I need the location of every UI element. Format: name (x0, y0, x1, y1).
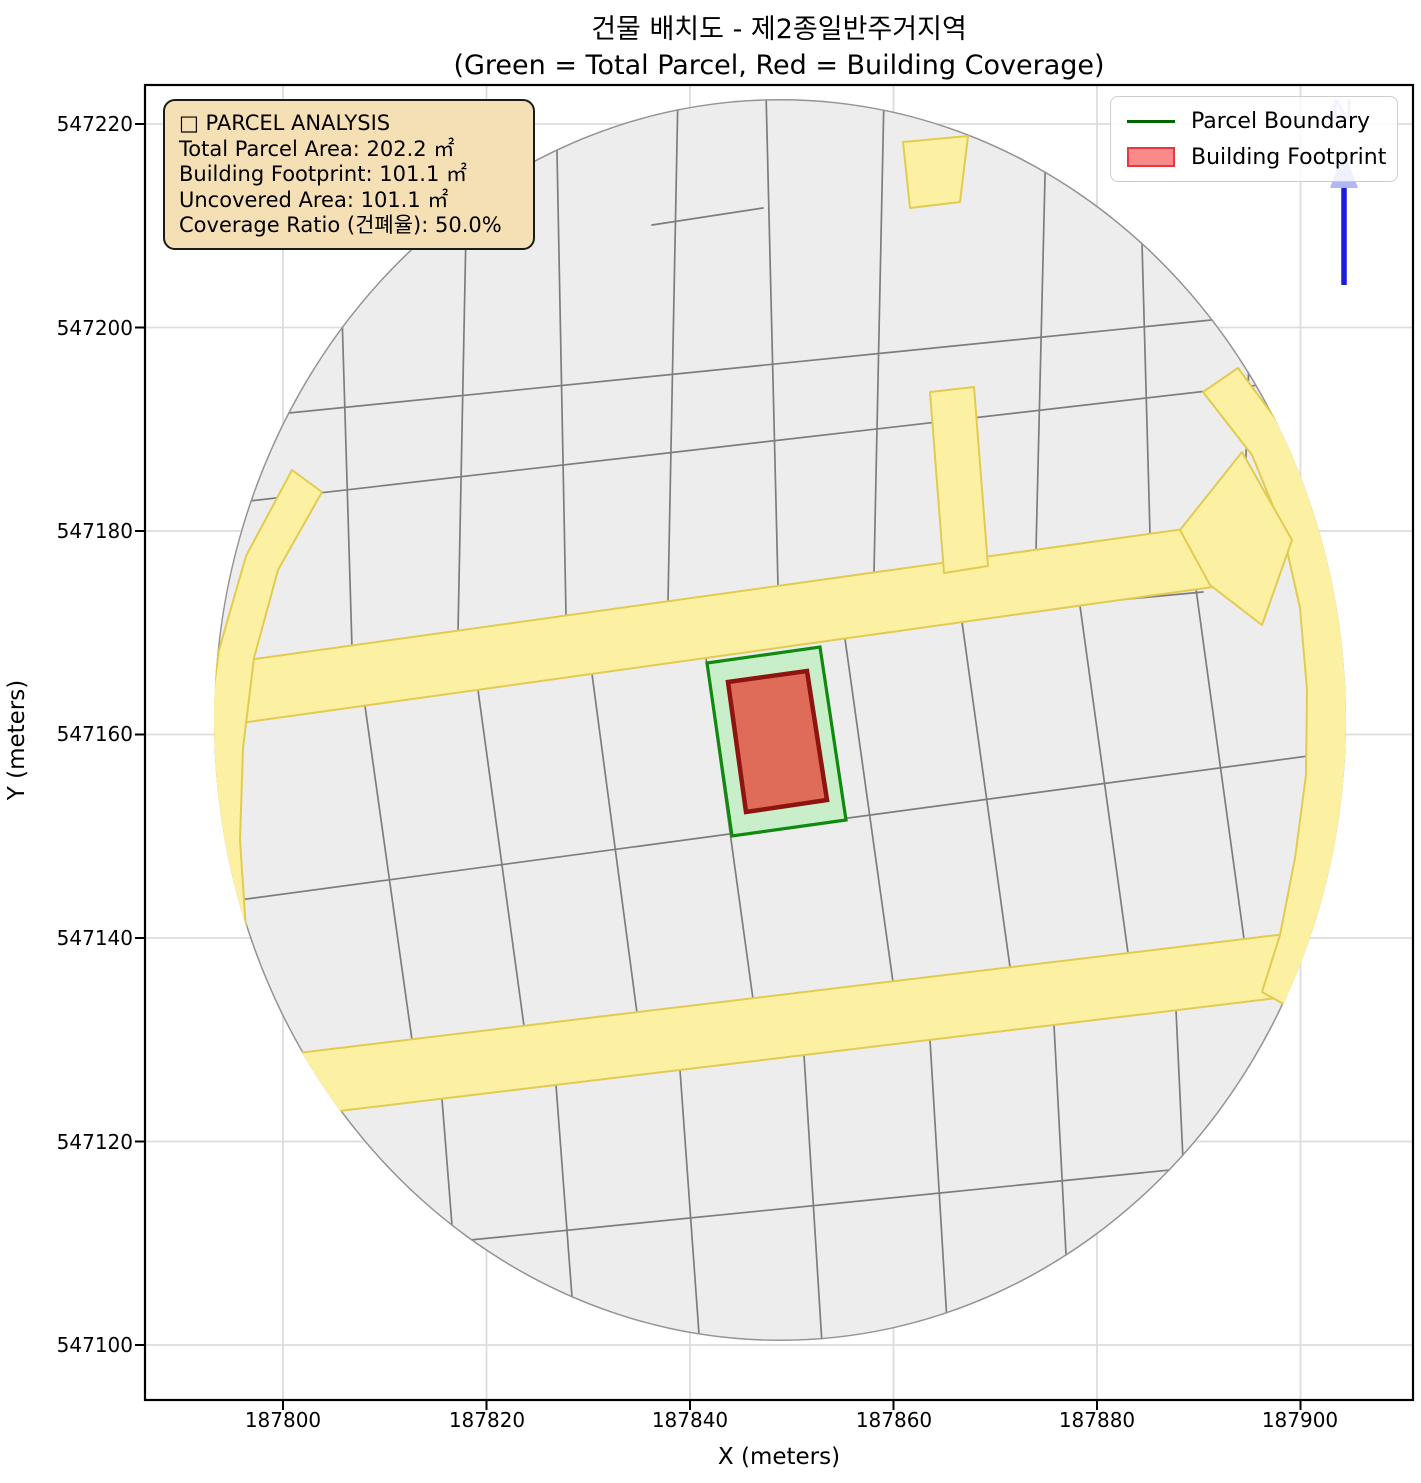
y-tick-label: 547120 (33, 1130, 133, 1154)
road-stub-top (903, 136, 968, 208)
building-footprint (728, 671, 827, 812)
y-tick-label: 547180 (33, 519, 133, 543)
legend-label: Parcel Boundary (1191, 109, 1370, 134)
title-line-1: 건물 배치도 - 제2종일반주거지역 (145, 12, 1413, 48)
legend-label: Building Footprint (1191, 145, 1386, 170)
figure: N 건물 배치도 - 제2종일반주거지역 (Green = Total Parc… (0, 0, 1421, 1483)
parcel-analysis-box: □ PARCEL ANALYSIS Total Parcel Area: 202… (163, 99, 535, 250)
y-tick-label: 547100 (33, 1333, 133, 1357)
title-line-2: (Green = Total Parcel, Red = Building Co… (145, 48, 1413, 84)
info-row-building-footprint: Building Footprint: 101.1 ㎡ (179, 162, 519, 188)
legend-item-building-footprint: Building Footprint (1121, 140, 1387, 174)
chart-title: 건물 배치도 - 제2종일반주거지역 (Green = Total Parcel… (145, 12, 1413, 84)
legend-item-parcel-boundary: Parcel Boundary (1121, 104, 1387, 138)
info-row-coverage-ratio: Coverage Ratio (건폐율): 50.0% (179, 213, 519, 239)
info-row-uncovered-area: Uncovered Area: 101.1 ㎡ (179, 188, 519, 214)
legend: Parcel Boundary Building Footprint (1110, 96, 1398, 182)
y-tick-label: 547140 (33, 926, 133, 950)
x-tick-label: 187820 (417, 1408, 557, 1432)
y-tick-label: 547160 (33, 722, 133, 746)
info-box-heading: □ PARCEL ANALYSIS (179, 111, 519, 137)
y-axis-label: Y (meters) (4, 558, 30, 922)
x-tick-label: 187800 (213, 1408, 353, 1432)
y-tick-label: 547220 (33, 112, 133, 136)
info-row-total-area: Total Parcel Area: 202.2 ㎡ (179, 137, 519, 163)
y-tick-label: 547200 (33, 316, 133, 340)
building-footprint-patch-swatch (1127, 147, 1175, 167)
x-tick-label: 187880 (1027, 1408, 1167, 1432)
x-axis-label: X (meters) (145, 1444, 1413, 1470)
x-tick-label: 187860 (824, 1408, 964, 1432)
x-tick-label: 187840 (620, 1408, 760, 1432)
parcel-boundary-line-swatch (1127, 120, 1175, 123)
x-tick-label: 187900 (1230, 1408, 1370, 1432)
